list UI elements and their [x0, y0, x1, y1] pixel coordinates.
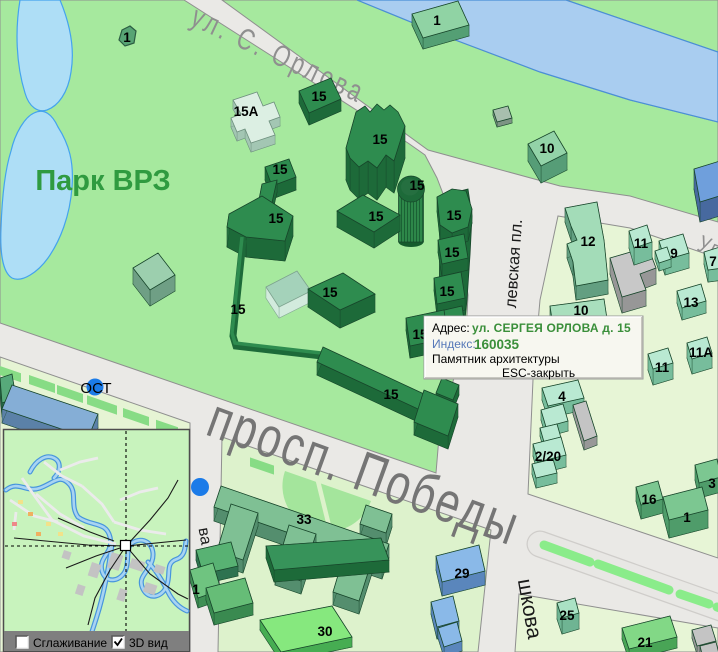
svg-text:12: 12: [580, 234, 595, 249]
svg-text:160035: 160035: [474, 337, 520, 352]
svg-text:11А: 11А: [689, 345, 713, 360]
svg-text:13: 13: [683, 295, 699, 310]
svg-text:ОСТ: ОСТ: [80, 380, 111, 397]
svg-text:11: 11: [634, 236, 649, 251]
svg-text:Памятник архитектуры: Памятник архитектуры: [432, 352, 560, 366]
svg-text:2/20: 2/20: [535, 449, 561, 464]
svg-text:3D вид: 3D вид: [129, 636, 168, 650]
svg-text:1: 1: [683, 510, 691, 525]
svg-text:15: 15: [372, 132, 388, 147]
svg-text:30: 30: [317, 624, 332, 639]
svg-text:1: 1: [192, 582, 200, 597]
svg-text:7: 7: [709, 254, 717, 269]
svg-text:Сглаживание: Сглаживание: [33, 636, 107, 650]
svg-text:1: 1: [123, 30, 131, 45]
svg-text:ESC-закрыть: ESC-закрыть: [502, 366, 575, 380]
svg-text:25: 25: [559, 608, 575, 623]
svg-text:15: 15: [268, 211, 284, 226]
svg-text:ул. СЕРГЕЯ ОРЛОВА д. 15: ул. СЕРГЕЯ ОРЛОВА д. 15: [472, 321, 631, 335]
svg-text:ва: ва: [195, 526, 215, 546]
svg-text:15: 15: [439, 284, 455, 299]
svg-text:3: 3: [708, 476, 716, 491]
svg-text:Парк ВРЗ: Парк ВРЗ: [35, 165, 170, 197]
svg-text:9: 9: [670, 246, 678, 261]
svg-text:4: 4: [558, 389, 566, 404]
svg-text:15: 15: [311, 89, 327, 104]
svg-text:11: 11: [655, 360, 670, 375]
svg-text:15: 15: [383, 387, 399, 402]
svg-text:29: 29: [454, 566, 469, 581]
svg-text:Адрес:: Адрес:: [432, 321, 470, 335]
svg-text:1: 1: [433, 13, 441, 28]
svg-text:15: 15: [444, 245, 460, 260]
svg-text:15А: 15А: [234, 104, 259, 119]
svg-text:33: 33: [296, 512, 312, 527]
svg-text:Индекс:: Индекс:: [432, 337, 476, 351]
svg-text:21: 21: [637, 635, 653, 650]
svg-text:15: 15: [446, 208, 462, 223]
svg-text:15: 15: [230, 302, 246, 317]
svg-text:16: 16: [641, 492, 657, 507]
svg-text:15: 15: [272, 162, 288, 177]
svg-text:15: 15: [368, 209, 384, 224]
svg-text:10: 10: [539, 141, 554, 156]
svg-text:15: 15: [409, 178, 425, 193]
svg-text:15: 15: [322, 285, 338, 300]
